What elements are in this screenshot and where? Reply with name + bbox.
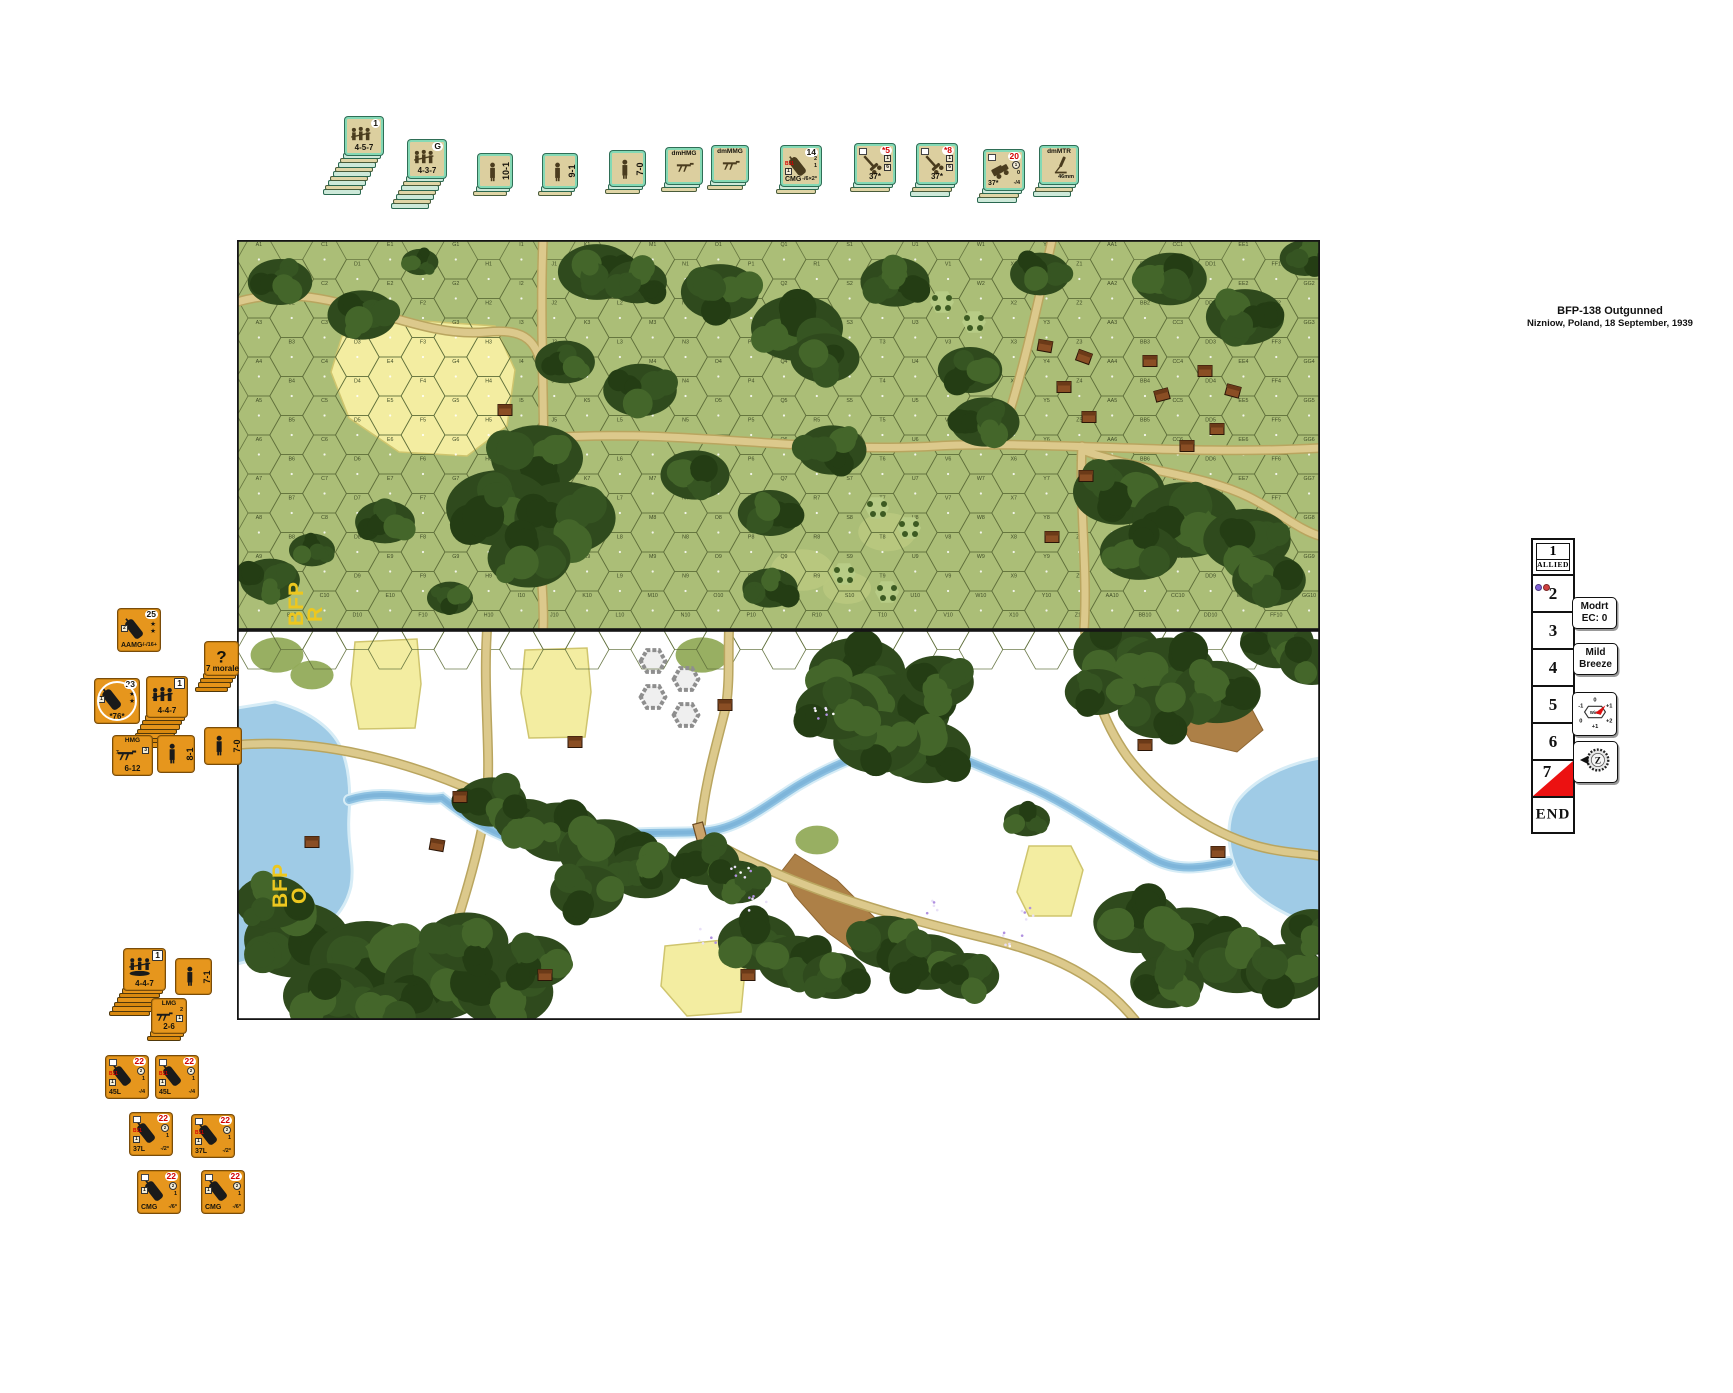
svg-text:CC1: CC1 — [1172, 242, 1183, 248]
svg-text:L6: L6 — [617, 457, 623, 463]
svg-text:Q5: Q5 — [780, 398, 787, 404]
svg-text:E4: E4 — [387, 359, 394, 365]
svg-text:N8: N8 — [682, 535, 689, 541]
corner-value: 1 — [174, 678, 185, 689]
svg-text:V8: V8 — [945, 535, 952, 541]
svg-text:P6: P6 — [748, 457, 755, 463]
svg-text:Y7: Y7 — [1043, 476, 1050, 482]
svg-text:S9: S9 — [846, 554, 853, 560]
svg-text:Q2: Q2 — [780, 281, 787, 287]
svg-text:Z3: Z3 — [1076, 340, 1082, 346]
svg-text:GG10: GG10 — [1302, 593, 1316, 599]
svg-text:U1: U1 — [912, 242, 919, 248]
svg-text:F6: F6 — [420, 457, 426, 463]
counter-suffix: -/2* — [160, 1147, 169, 1153]
right-values: 3 — [142, 747, 149, 756]
svg-text:Y3: Y3 — [1043, 320, 1050, 326]
svg-text:CC10: CC10 — [1171, 593, 1185, 599]
svg-text:L8: L8 — [617, 535, 623, 541]
mg-icon — [675, 155, 697, 177]
svg-text:M8: M8 — [649, 515, 656, 521]
svg-text:Z: Z — [1594, 756, 1600, 766]
polish-tank-aamg-25[interactable]: 25AAMG-/-/16+2★★ — [118, 609, 160, 651]
svg-text:-1: -1 — [1578, 703, 1583, 709]
svg-text:X6: X6 — [1010, 457, 1017, 463]
svg-text:FF1: FF1 — [1272, 262, 1281, 268]
svg-text:DD9: DD9 — [1205, 574, 1216, 580]
building — [1211, 847, 1225, 858]
pool-dm-mmg[interactable]: dmMMG — [712, 146, 748, 182]
svg-text:J5: J5 — [551, 418, 557, 424]
pool-dm-hmg[interactable]: dmHMG — [666, 148, 702, 184]
svg-text:C2: C2 — [321, 281, 328, 287]
svg-text:G7: G7 — [452, 476, 459, 482]
polish-tank-cmg-2[interactable]: 22CMG-/6*121 — [202, 1171, 244, 1213]
svg-text:H9: H9 — [485, 574, 492, 580]
svg-text:BB2: BB2 — [1140, 301, 1150, 307]
compass-button[interactable]: Z — [1573, 741, 1618, 783]
pool-gun-37-8[interactable]: *837*16 — [917, 144, 957, 184]
svg-text:GG9: GG9 — [1303, 554, 1314, 560]
corner-value: G — [432, 142, 443, 151]
svg-text:EE6: EE6 — [1238, 437, 1248, 443]
svg-text:L5: L5 — [617, 418, 623, 424]
svg-text:T5: T5 — [879, 418, 885, 424]
svg-text:X2: X2 — [1010, 301, 1017, 307]
svg-text:O10: O10 — [713, 593, 723, 599]
scenario-title: BFP-138 Outgunned — [1480, 305, 1733, 317]
svg-text:AA10: AA10 — [1106, 593, 1119, 599]
counter-type-label: dmMTR — [1042, 149, 1076, 156]
counter-value: 37* — [988, 180, 999, 187]
svg-text:H2: H2 — [485, 301, 492, 307]
polish-cav-4-4-7[interactable]: 14-4-7 — [124, 949, 165, 990]
polish-tank-76-23[interactable]: 23*76*1★★ — [95, 679, 139, 723]
turn-track-cell-2[interactable]: 2 — [1531, 575, 1575, 612]
svg-text:F5: F5 — [420, 418, 426, 424]
ma-box — [205, 1174, 213, 1181]
building — [1079, 471, 1093, 482]
svg-text:G2: G2 — [452, 281, 459, 287]
svg-text:G3: G3 — [452, 320, 459, 326]
polish-concealment-stack[interactable]: ?7 morale — [205, 642, 238, 675]
left-values: 7 — [116, 751, 119, 758]
right-values: 10 — [1012, 161, 1020, 178]
board: A1A2A3A4A5A6A7A8A9A10B1B2B3B4B5B6B7B8B9B… — [237, 240, 1320, 669]
svg-text:I1: I1 — [519, 242, 523, 248]
svg-text:I5: I5 — [519, 398, 523, 404]
svg-text:Q1: Q1 — [780, 242, 787, 248]
polish-tank-cmg-1[interactable]: 22CMG-/6*121 — [138, 1171, 180, 1213]
svg-text:D10: D10 — [352, 613, 362, 619]
polish-squad-4-4-7[interactable]: 14-4-7 — [147, 677, 187, 717]
svg-text:GG2: GG2 — [1303, 281, 1314, 287]
building — [1198, 366, 1212, 377]
corner-value: 20 — [1008, 152, 1021, 161]
pool-gun-37-5[interactable]: *537*16 — [855, 144, 895, 184]
left-values: B111 — [159, 1072, 168, 1087]
svg-text:BB4: BB4 — [1140, 379, 1150, 385]
svg-text:E7: E7 — [387, 476, 394, 482]
svg-text:W8: W8 — [977, 515, 985, 521]
polish-hmg[interactable]: HMG6-1273 — [113, 736, 152, 775]
svg-text:O9: O9 — [715, 554, 722, 560]
svg-text:L7: L7 — [617, 496, 623, 502]
ma-box — [133, 1116, 141, 1123]
svg-text:C7: C7 — [321, 476, 328, 482]
svg-text:R5: R5 — [813, 418, 820, 424]
svg-text:F3: F3 — [420, 340, 426, 346]
svg-text:Z1: Z1 — [1076, 262, 1082, 268]
svg-text:P10: P10 — [746, 613, 755, 619]
svg-text:E2: E2 — [387, 281, 394, 287]
svg-text:T10: T10 — [878, 613, 887, 619]
counter-suffix: 46mm — [1058, 175, 1074, 181]
svg-text:U10: U10 — [910, 593, 920, 599]
building — [1143, 356, 1157, 367]
polish-leader-8-1[interactable]: 8-1 — [158, 736, 194, 772]
ma-box — [159, 1059, 167, 1066]
svg-text:F8: F8 — [420, 535, 426, 541]
counter-suffix: -/6* — [168, 1205, 177, 1211]
right-values: 21 — [176, 1008, 183, 1024]
squad-icon — [150, 684, 175, 709]
svg-text:C10: C10 — [320, 593, 330, 599]
svg-text:FF10: FF10 — [1270, 613, 1282, 619]
counter-type-label: dmMMG — [714, 149, 746, 156]
svg-text:GG8: GG8 — [1303, 515, 1314, 521]
ma-box — [195, 1118, 203, 1125]
svg-text:A9: A9 — [256, 554, 263, 560]
turn-track-cell-end[interactable]: END — [1531, 797, 1575, 834]
svg-text:D7: D7 — [354, 496, 361, 502]
turn-track: 1ALLIED234567END — [1531, 538, 1575, 834]
svg-text:+1: +1 — [1605, 703, 1611, 709]
svg-text:C4: C4 — [321, 359, 328, 365]
svg-text:A3: A3 — [256, 320, 263, 326]
ec-marker-button[interactable]: ModrtEC: 0 — [1572, 597, 1617, 629]
mg-icon — [721, 153, 743, 175]
building — [305, 837, 319, 848]
polish-leader-7-0[interactable]: 7-0 — [205, 728, 241, 764]
counter-value: 6-12 — [114, 765, 151, 773]
svg-text:R1: R1 — [813, 262, 820, 268]
svg-text:X8: X8 — [1010, 535, 1017, 541]
right-values: 21 — [187, 1067, 195, 1084]
svg-text:M4: M4 — [649, 359, 656, 365]
svg-text:H4: H4 — [485, 379, 492, 385]
svg-text:FF3: FF3 — [1272, 340, 1281, 346]
svg-text:E10: E10 — [385, 593, 394, 599]
svg-text:GG4: GG4 — [1303, 359, 1314, 365]
pool-dm-mtr[interactable]: dmMTR46mm — [1040, 146, 1078, 184]
building — [429, 838, 445, 851]
svg-text:W7: W7 — [977, 476, 985, 482]
svg-text:GG6: GG6 — [1303, 437, 1314, 443]
counter-value: CMG — [141, 1204, 157, 1211]
svg-text:K5: K5 — [584, 398, 591, 404]
svg-text:E5: E5 — [387, 398, 394, 404]
building — [1138, 740, 1152, 751]
wind-rose-button[interactable]: 0 -1 +1 0 +2 +1 Wind — [1572, 692, 1617, 736]
svg-text:Y9: Y9 — [1043, 554, 1050, 560]
svg-text:I2: I2 — [519, 281, 523, 287]
stone-wall-hex — [641, 650, 666, 672]
pool-tank-cmg[interactable]: 14CMG-/6×2*B11121 — [781, 146, 821, 186]
svg-text:Y4: Y4 — [1043, 359, 1050, 365]
svg-text:F4: F4 — [420, 379, 426, 385]
turn-track-cell-6[interactable]: 6 — [1531, 723, 1575, 760]
svg-text:GG3: GG3 — [1303, 320, 1314, 326]
svg-text:N4: N4 — [682, 379, 689, 385]
svg-text:A4: A4 — [256, 359, 263, 365]
wind-rose-icon: 0 -1 +1 0 +2 +1 Wind — [1574, 694, 1616, 730]
ma-box — [109, 1059, 117, 1066]
polish-lmg[interactable]: LMG2-621 — [152, 999, 186, 1033]
mg-icon — [116, 742, 140, 766]
svg-text:M3: M3 — [649, 320, 656, 326]
svg-text:AA1: AA1 — [1107, 242, 1117, 248]
svg-text:S3: S3 — [846, 320, 853, 326]
breeze-marker-button[interactable]: MildBreeze — [1573, 643, 1618, 675]
pool-leader-9-1[interactable]: 9-1 — [543, 154, 577, 188]
svg-text:M7: M7 — [649, 476, 656, 482]
svg-text:N1: N1 — [682, 262, 689, 268]
svg-text:Q9: Q9 — [780, 554, 787, 560]
svg-text:Y10: Y10 — [1042, 593, 1051, 599]
svg-text:AA6: AA6 — [1107, 437, 1117, 443]
svg-text:D1: D1 — [354, 262, 361, 268]
svg-text:B3: B3 — [288, 340, 295, 346]
svg-text:AA5: AA5 — [1107, 398, 1117, 404]
svg-text:I4: I4 — [519, 359, 523, 365]
svg-text:U4: U4 — [912, 359, 919, 365]
concealment-question: ? — [206, 648, 237, 665]
corner-value: 14 — [805, 148, 818, 157]
counter-type-label: HMG — [114, 738, 151, 745]
stone-wall-hex — [641, 686, 666, 708]
svg-text:AA4: AA4 — [1107, 359, 1117, 365]
left-values: B111 — [785, 162, 794, 177]
svg-text:FF4: FF4 — [1272, 379, 1281, 385]
svg-text:GG5: GG5 — [1303, 398, 1314, 404]
svg-text:A7: A7 — [256, 476, 263, 482]
scenario-title-block: BFP-138 Outgunned Nizniow, Poland, 18 Se… — [1480, 305, 1733, 329]
svg-text:U3: U3 — [912, 320, 919, 326]
svg-text:G5: G5 — [452, 398, 459, 404]
svg-text:V3: V3 — [945, 340, 952, 346]
counter-value: AAMG — [121, 642, 142, 649]
svg-text:CC3: CC3 — [1172, 320, 1183, 326]
svg-text:B4: B4 — [288, 379, 295, 385]
svg-text:S5: S5 — [846, 398, 853, 404]
svg-text:U5: U5 — [912, 398, 919, 404]
building — [1082, 412, 1096, 423]
svg-text:Q7: Q7 — [780, 476, 787, 482]
building — [1045, 532, 1059, 543]
pool-leader-10-1[interactable]: 10-1 — [478, 154, 512, 188]
leader-icon — [179, 965, 201, 987]
svg-text:G6: G6 — [452, 437, 459, 443]
svg-text:J10: J10 — [550, 613, 559, 619]
counter-suffix: -/4 — [189, 1090, 195, 1096]
svg-text:N9: N9 — [682, 574, 689, 580]
corner-value: 1 — [152, 950, 163, 961]
svg-text:V1: V1 — [945, 262, 952, 268]
svg-text:O8: O8 — [715, 515, 722, 521]
svg-text:DD4: DD4 — [1205, 379, 1216, 385]
right-values: 16 — [946, 155, 953, 172]
polish-tank-37L-1[interactable]: 2237L-/2*B11121 — [130, 1113, 172, 1155]
svg-text:EE1: EE1 — [1238, 242, 1248, 248]
svg-text:N10: N10 — [681, 613, 691, 619]
polish-tank-37L-2[interactable]: 2237L-/2*B11121 — [192, 1115, 234, 1157]
svg-text:W1: W1 — [977, 242, 985, 248]
svg-text:D5: D5 — [354, 418, 361, 424]
svg-text:EE5: EE5 — [1238, 398, 1248, 404]
polish-tank-45L-2[interactable]: 2245L-/4B11121 — [156, 1056, 198, 1098]
right-values: 21 — [161, 1124, 169, 1141]
svg-text:Y8: Y8 — [1043, 515, 1050, 521]
pool-truck-37[interactable]: 2037*-/410 — [984, 150, 1024, 190]
svg-text:0: 0 — [1593, 698, 1596, 704]
svg-text:FF7: FF7 — [1272, 496, 1281, 502]
svg-text:P1: P1 — [748, 262, 755, 268]
leader-value: 10-1 — [502, 162, 511, 180]
svg-text:L9: L9 — [617, 574, 623, 580]
corner-value: *5 — [880, 146, 892, 155]
svg-text:D9: D9 — [354, 574, 361, 580]
svg-text:K7: K7 — [584, 476, 591, 482]
svg-text:T9: T9 — [879, 574, 885, 580]
right-values: 21 — [223, 1126, 231, 1143]
svg-text:FF5: FF5 — [1272, 418, 1281, 424]
svg-text:DD5: DD5 — [1205, 418, 1216, 424]
ma-box — [859, 148, 867, 155]
svg-text:X10: X10 — [1009, 613, 1018, 619]
svg-text:EE7: EE7 — [1238, 476, 1248, 482]
polish-tank-45L-1[interactable]: 2245L-/4B11121 — [106, 1056, 148, 1098]
pool-leader-7-0[interactable]: 7-0 — [610, 151, 645, 186]
svg-text:K3: K3 — [584, 320, 591, 326]
leader-icon — [614, 158, 636, 180]
counter-value: 37L — [133, 1146, 145, 1153]
right-values: 21 — [814, 157, 817, 171]
turn-track-cell-1[interactable]: 1ALLIED — [1531, 538, 1575, 575]
compass-icon: Z — [1576, 743, 1616, 777]
svg-text:T8: T8 — [879, 535, 885, 541]
svg-text:T3: T3 — [879, 340, 885, 346]
svg-text:V6: V6 — [945, 457, 952, 463]
svg-text:V10: V10 — [943, 613, 952, 619]
svg-text:A8: A8 — [256, 515, 263, 521]
svg-text:B6: B6 — [288, 457, 295, 463]
svg-text:M10: M10 — [648, 593, 658, 599]
svg-text:W2: W2 — [977, 281, 985, 287]
svg-text:DD6: DD6 — [1205, 457, 1216, 463]
svg-text:O1: O1 — [715, 242, 722, 248]
svg-text:X7: X7 — [1010, 496, 1017, 502]
pool-squad-4-3-7[interactable]: G4-3-7 — [408, 140, 446, 178]
svg-text:P4: P4 — [748, 379, 755, 385]
turn-track-cell-5[interactable]: 5 — [1531, 686, 1575, 723]
svg-text:L3: L3 — [617, 340, 623, 346]
svg-text:BB10: BB10 — [1138, 613, 1151, 619]
svg-text:P8: P8 — [748, 535, 755, 541]
counter-suffix: -/4 — [1014, 181, 1020, 187]
svg-text:C6: C6 — [321, 437, 328, 443]
svg-text:N3: N3 — [682, 340, 689, 346]
turn-track-cell-4[interactable]: 4 — [1531, 649, 1575, 686]
corner-value: 22 — [165, 1172, 178, 1181]
svg-text:R9: R9 — [813, 574, 820, 580]
turn-track-cell-7[interactable]: 7 — [1531, 760, 1575, 797]
right-values: 21 — [169, 1182, 177, 1199]
leader-value: 8-1 — [186, 747, 195, 760]
svg-text:C5: C5 — [321, 398, 328, 404]
svg-text:R7: R7 — [813, 496, 820, 502]
svg-text:W10: W10 — [975, 593, 986, 599]
corner-value: 22 — [133, 1057, 146, 1066]
svg-text:FF6: FF6 — [1272, 457, 1281, 463]
svg-text:BB5: BB5 — [1140, 418, 1150, 424]
leader-value: 9-1 — [568, 164, 577, 177]
svg-text:J1: J1 — [551, 262, 557, 268]
corner-value: 25 — [145, 610, 158, 619]
svg-text:S1: S1 — [846, 242, 853, 248]
counter-type-label: dmHMG — [668, 151, 700, 158]
building — [568, 737, 582, 748]
cavalry-icon — [127, 956, 152, 981]
svg-text:E6: E6 — [387, 437, 394, 443]
svg-text:N5: N5 — [682, 418, 689, 424]
svg-text:Q4: Q4 — [780, 359, 787, 365]
counter-value: 2-6 — [153, 1023, 185, 1031]
svg-text:E9: E9 — [387, 554, 394, 560]
corner-value: 22 — [219, 1116, 232, 1125]
polish-leader-7-1[interactable]: 7-1 — [176, 959, 211, 994]
left-values: B111 — [195, 1131, 204, 1146]
truck-icon — [988, 158, 1013, 183]
svg-text:A6: A6 — [256, 437, 263, 443]
svg-text:Z4: Z4 — [1076, 379, 1082, 385]
svg-text:S7: S7 — [846, 476, 853, 482]
svg-text:X3: X3 — [1010, 340, 1017, 346]
svg-text:V9: V9 — [945, 574, 952, 580]
svg-text:EE4: EE4 — [1238, 359, 1248, 365]
left-values: 2 — [121, 625, 128, 634]
pool-squad-4-5-7[interactable]: 14-5-7 — [345, 117, 383, 155]
vasl-game-window: A1A2A3A4A5A6A7A8A9A10B1B2B3B4B5B6B7B8B9B… — [0, 0, 1733, 1393]
leader-icon — [547, 161, 568, 182]
svg-text:O5: O5 — [715, 398, 722, 404]
svg-text:H1: H1 — [485, 262, 492, 268]
counter-value: 7 morale — [206, 665, 237, 673]
turn-track-cell-3[interactable]: 3 — [1531, 612, 1575, 649]
counter-value: 37L — [195, 1148, 207, 1155]
svg-text:V7: V7 — [945, 496, 952, 502]
svg-text:BB3: BB3 — [1140, 340, 1150, 346]
svg-text:H5: H5 — [485, 418, 492, 424]
leader-value: 7-0 — [636, 162, 645, 175]
svg-text:DD1: DD1 — [1205, 262, 1216, 268]
svg-text:X9: X9 — [1010, 574, 1017, 580]
svg-text:AA2: AA2 — [1107, 281, 1117, 287]
game-map[interactable]: A1A2A3A4A5A6A7A8A9A10B1B2B3B4B5B6B7B8B9B… — [237, 240, 1320, 1020]
counter-value: 37* — [857, 173, 893, 181]
svg-text:I10: I10 — [518, 593, 525, 599]
svg-text:R8: R8 — [813, 535, 820, 541]
